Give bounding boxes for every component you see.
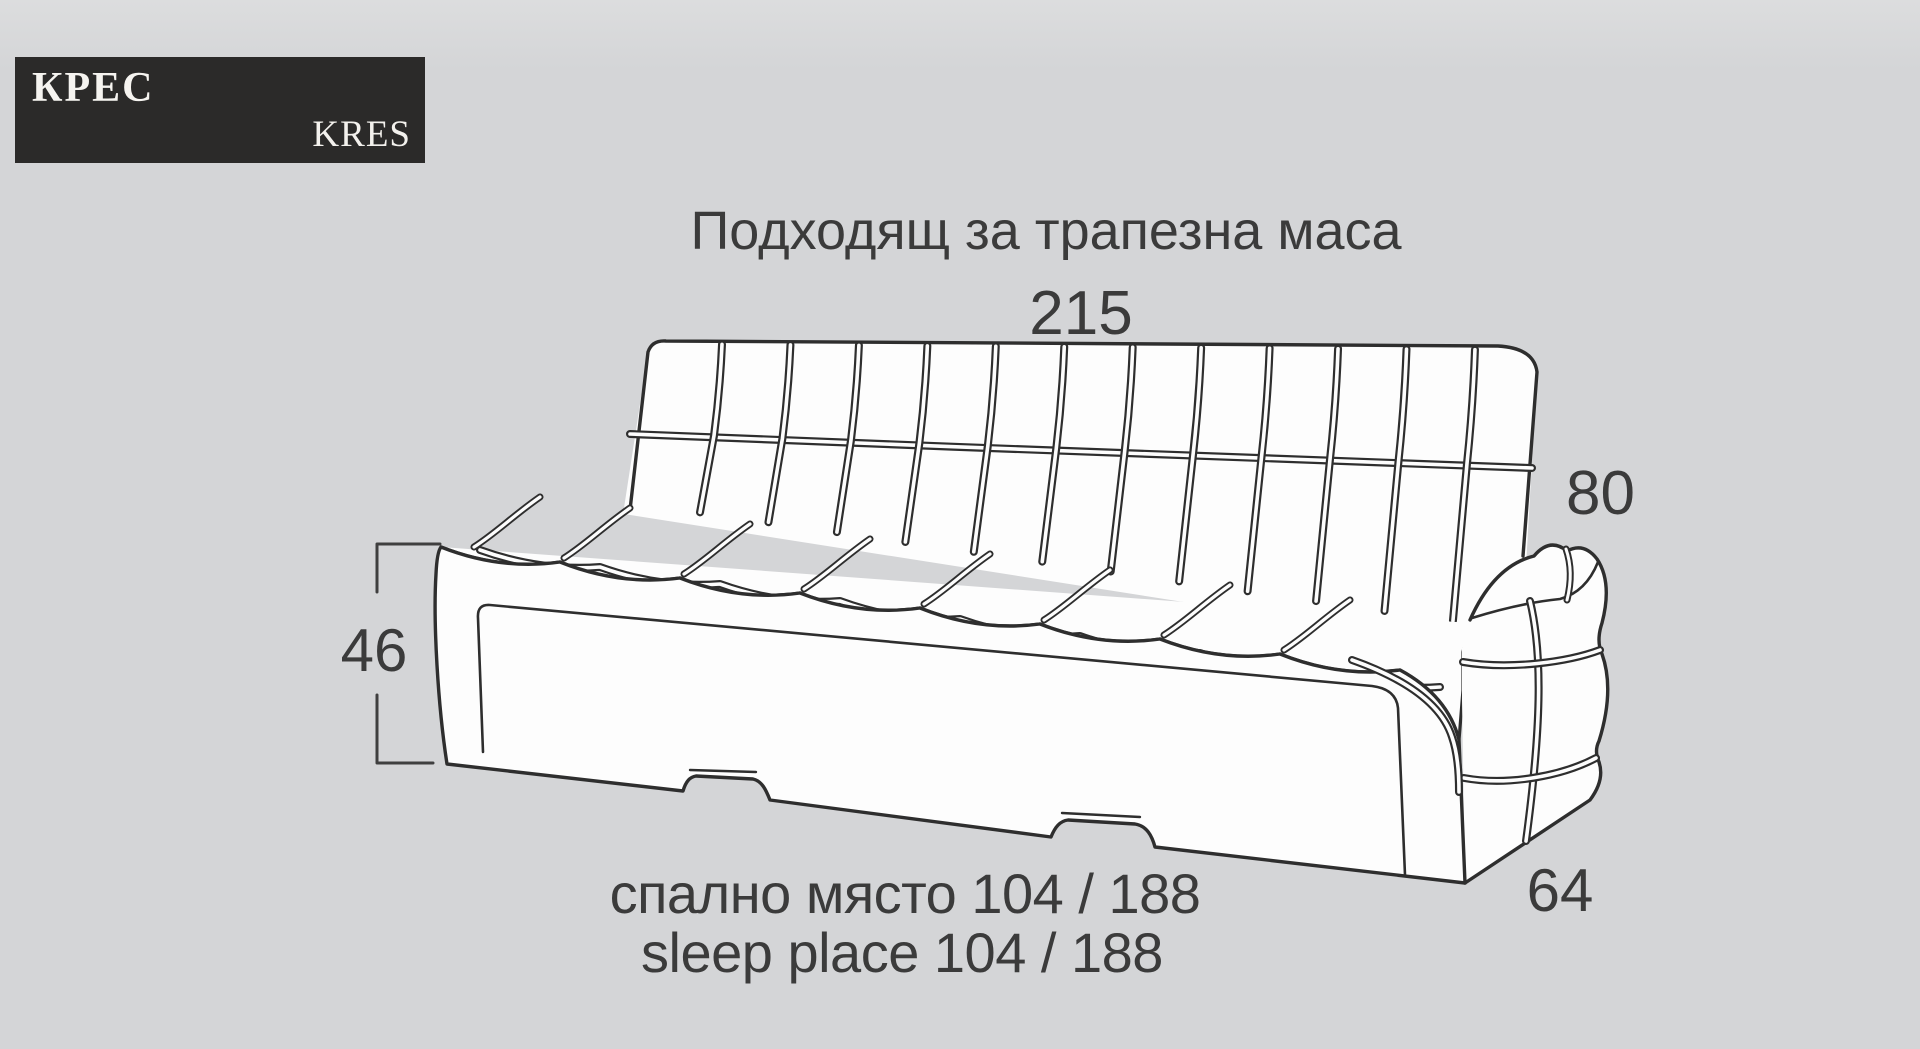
sleep-place-caption-en: sleep place 104 / 188 [641,925,1163,981]
seat-gap-seam-inner [564,508,630,558]
seat-gap-seam-inner [474,497,540,547]
diagram-title: Подходящ за трапезна маса [690,204,1401,258]
dimension-back-height: 80 [1566,463,1635,525]
dimension-width: 215 [1029,283,1132,345]
sleep-place-caption-bg: спално място 104 / 188 [610,866,1201,922]
dimension-depth: 64 [1527,861,1594,921]
furniture-dimension-diagram: КРЕС KRES Подходящ за трапезна маса 215 … [0,0,1920,1049]
seat-gap-seam-inner [684,524,750,574]
dimension-seat-height: 46 [341,621,408,681]
